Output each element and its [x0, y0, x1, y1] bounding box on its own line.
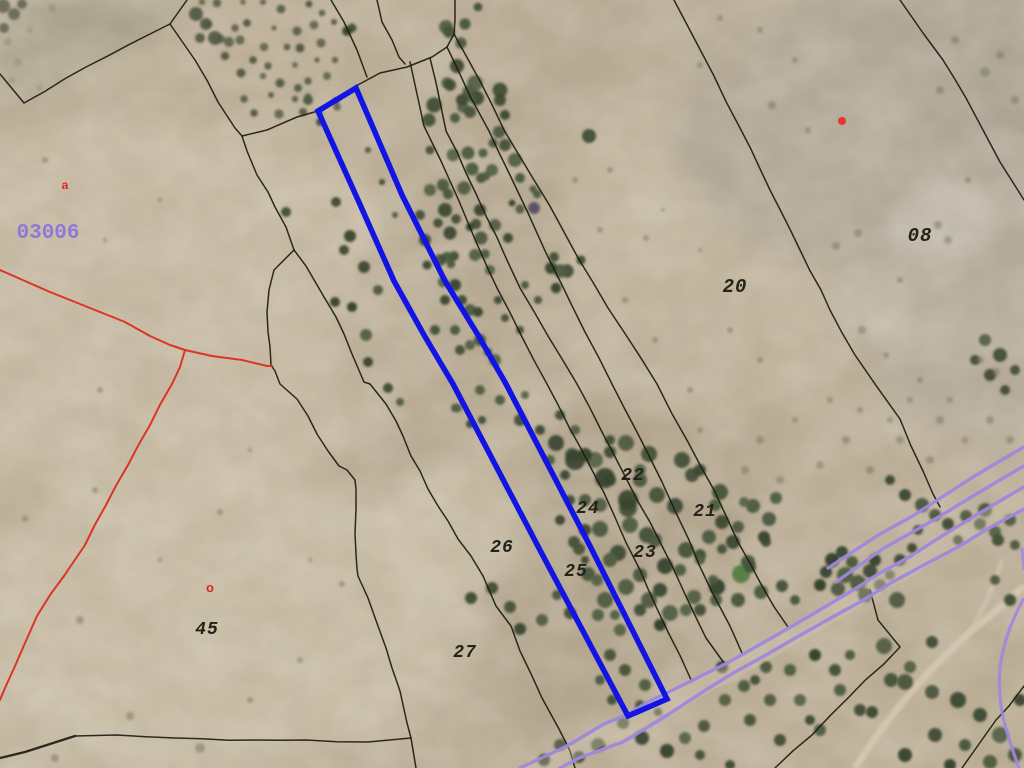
svg-text:21: 21 [693, 502, 717, 522]
svg-text:26: 26 [490, 538, 514, 558]
svg-text:22: 22 [621, 466, 645, 486]
svg-text:23: 23 [633, 543, 657, 563]
svg-text:03006: 03006 [16, 222, 79, 245]
svg-text:24: 24 [576, 499, 600, 519]
svg-text:27: 27 [453, 643, 477, 663]
svg-text:08: 08 [908, 225, 933, 247]
svg-text:20: 20 [723, 276, 748, 298]
svg-text:25: 25 [564, 562, 588, 582]
svg-text:a: a [62, 178, 69, 192]
svg-text:45: 45 [195, 620, 219, 640]
svg-text:o: o [206, 580, 214, 595]
